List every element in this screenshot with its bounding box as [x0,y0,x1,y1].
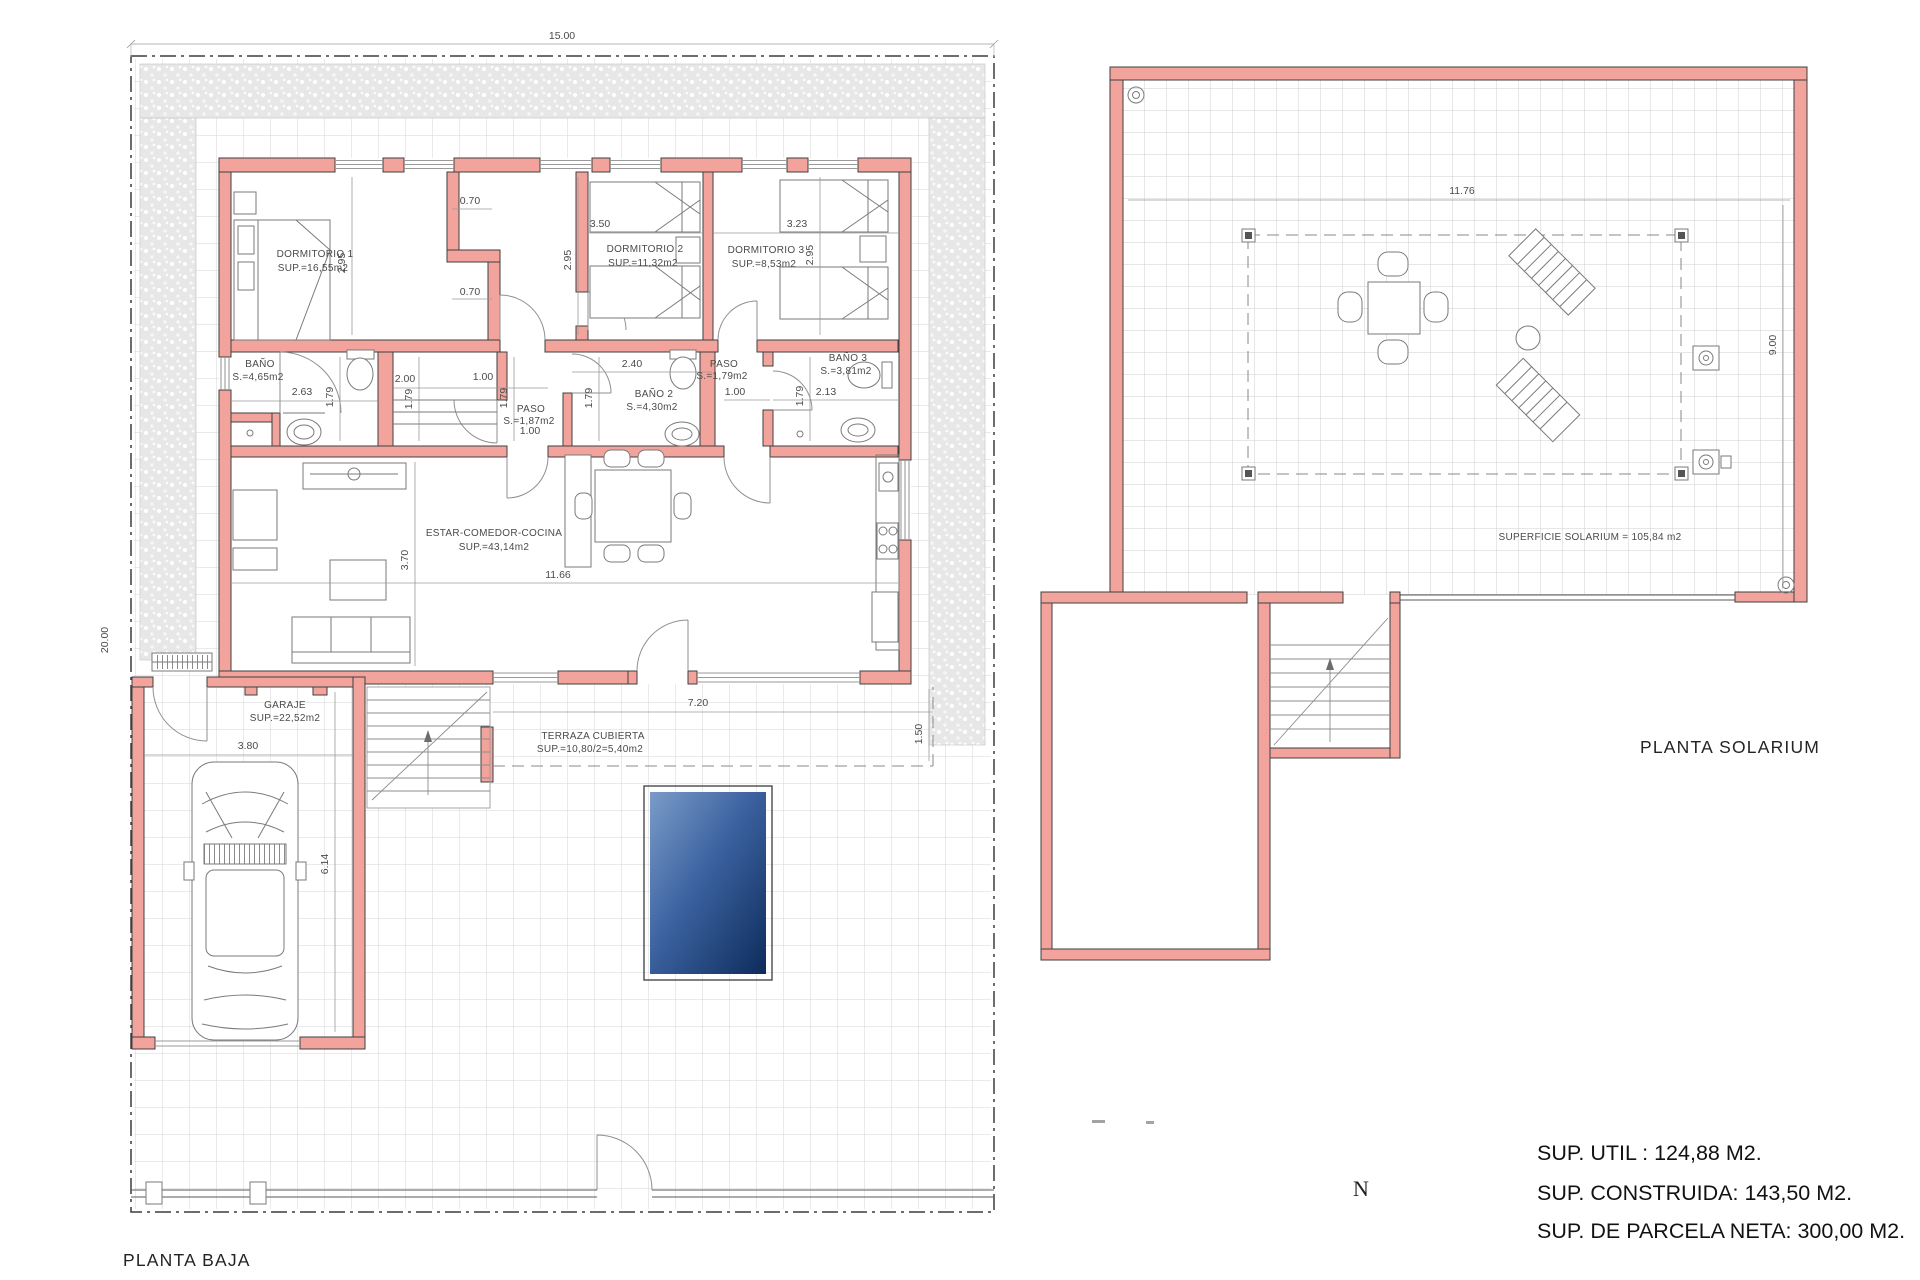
patio-chair [1338,292,1362,322]
patio-chair [1378,252,1408,276]
planta-baja-plan: 15.00 20.00 [99,30,998,1270]
room-area: S.=1,79m2 [696,371,747,382]
dim-dorm3-width: 3.23 [787,218,808,230]
car [184,762,306,1040]
room-label: PASO [517,404,545,415]
dim-bano3-width: 2.13 [816,386,837,398]
sofa [292,617,410,663]
room-label: BAÑO 3 [829,351,868,364]
solarium-deck-grid [1123,80,1794,595]
chair [638,450,664,467]
solarium-surface-label: SUPERFICIE SOLARIUM = 105,84 m2 [1499,532,1682,543]
dim-living-depth: 3.70 [399,550,411,571]
room-label: DORMITORIO 2 [607,244,684,255]
room-label: BAÑO [245,357,275,370]
mirror [296,862,306,880]
pool [644,786,772,980]
blueprint-page: 15.00 20.00 [0,0,1920,1280]
stray-mark [1092,1120,1105,1123]
dim-plot-width-label: 15.00 [549,30,575,42]
room-label: BAÑO 2 [635,387,674,400]
wall-fixture [1693,346,1719,370]
room-label: DORMITORIO 1 [277,249,354,260]
room-area: SUP.=11,32m2 [608,258,678,269]
chair [674,493,691,519]
room-area: SUP.=10,80/2=5,40m2 [537,744,643,755]
patio-chair [1424,292,1448,322]
room-area: S.=3,81m2 [820,366,871,377]
summary-parcela: SUP. DE PARCELA NETA: 300,00 M2. [1537,1219,1905,1243]
blueprint-canvas: 15.00 20.00 [0,0,1920,1280]
dim-plot-width: 15.00 [127,30,998,57]
vent-grille [152,653,212,671]
fence-pier [146,1182,162,1204]
solarium-stairs [1270,618,1390,745]
dim-bano2-width: 2.40 [622,358,643,370]
room-area: S.=4,65m2 [232,372,283,383]
kitchen-sink [879,463,898,491]
toilet [670,357,696,389]
sink [841,418,875,442]
armchair [233,490,277,540]
side-table [1516,326,1540,350]
dim-bano1-width: 2.63 [292,386,313,398]
fence-pier [250,1182,266,1204]
dim-bano2-depth: 1.79 [583,388,595,409]
patio-chair [1378,340,1408,364]
dim-closet-top: 0.70 [460,195,481,207]
room-area: S.=1,87m2 [503,416,554,427]
room-area: SUP.=8,53m2 [732,259,797,270]
planta-baja-title: PLANTA BAJA [123,1250,251,1270]
planta-solarium-title: PLANTA SOLARIUM [1640,737,1820,757]
dim-paso1-depth: 1.79 [498,388,510,409]
nightstand [234,192,256,214]
dim-solarium-width: 11.76 [1449,185,1475,197]
room-label: ESTAR-COMEDOR-COCINA [426,528,562,539]
chair [638,545,664,562]
room-area: SUP.=22,52m2 [250,713,321,724]
chair [604,450,630,467]
dim-paso2-depth: 1.79 [794,386,806,407]
dim-bano1-depth: 1.79 [324,387,336,408]
nightstand [860,236,886,262]
room-label: TERRAZA CUBIERTA [541,731,644,742]
tv-sideboard [303,463,406,489]
dim-garaje-width: 3.80 [238,740,259,752]
north-marker: N [1353,1176,1369,1201]
room-area: SUP.=16,55m2 [278,263,349,274]
dim-m-door: 1.00 [473,371,494,383]
room-label: GARAJE [264,700,306,711]
summary-util: SUP. UTIL : 124,88 M2. [1537,1141,1762,1165]
chair [575,493,592,519]
single-bed [590,266,700,318]
dim-paso2-width: 1.00 [725,386,746,398]
dim-dorm3-depth: 2.95 [804,245,816,266]
dim-m-depth: 1.79 [403,389,415,410]
coffee-table [330,560,386,600]
pillow [238,262,254,290]
annotations: N SUP. UTIL : 124,88 M2. SUP. CONSTRUIDA… [1092,1120,1905,1243]
room-area: S.=4,30m2 [626,402,677,413]
patio-table [1368,282,1420,334]
dim-living-width: 11.66 [545,569,571,581]
solarium-lower-walls [1041,592,1400,960]
toilet [347,358,373,390]
dim-closet-bottom: 0.70 [460,286,481,298]
dim-plot-depth-label: 20.00 [99,627,111,653]
stair-arrow [1326,658,1334,670]
fridge [872,592,898,642]
dim-dorm2-width: 3.50 [590,218,611,230]
room-area: SUP.=43,14m2 [459,542,530,553]
room-label: PASO [710,359,738,370]
room-label: DORMITORIO 3 [728,245,805,256]
dim-terraza-width: 7.20 [688,697,709,709]
summary-construida: SUP. CONSTRUIDA: 143,50 M2. [1537,1181,1852,1205]
mirror [184,862,194,880]
toilet-tank [882,362,892,388]
dining-table [595,470,671,542]
dim-dorm2-depth: 2.95 [562,250,574,271]
dim-terraza-depth: 1.50 [913,724,925,745]
single-bed [780,267,888,319]
solarium-railing [1400,595,1735,600]
planta-solarium-plan: 11.76 9.00 SUPERFICIE SOLARIUM = 105,84 … [1041,67,1820,960]
dim-m-width: 2.00 [395,373,416,385]
dim-garaje-depth: 6.14 [319,854,331,875]
side-table [233,548,277,570]
stray-mark [1146,1121,1154,1124]
pillow [238,226,254,254]
sink [287,419,321,445]
dim-solarium-depth: 9.00 [1767,335,1779,356]
sink [665,422,699,446]
chair [604,545,630,562]
